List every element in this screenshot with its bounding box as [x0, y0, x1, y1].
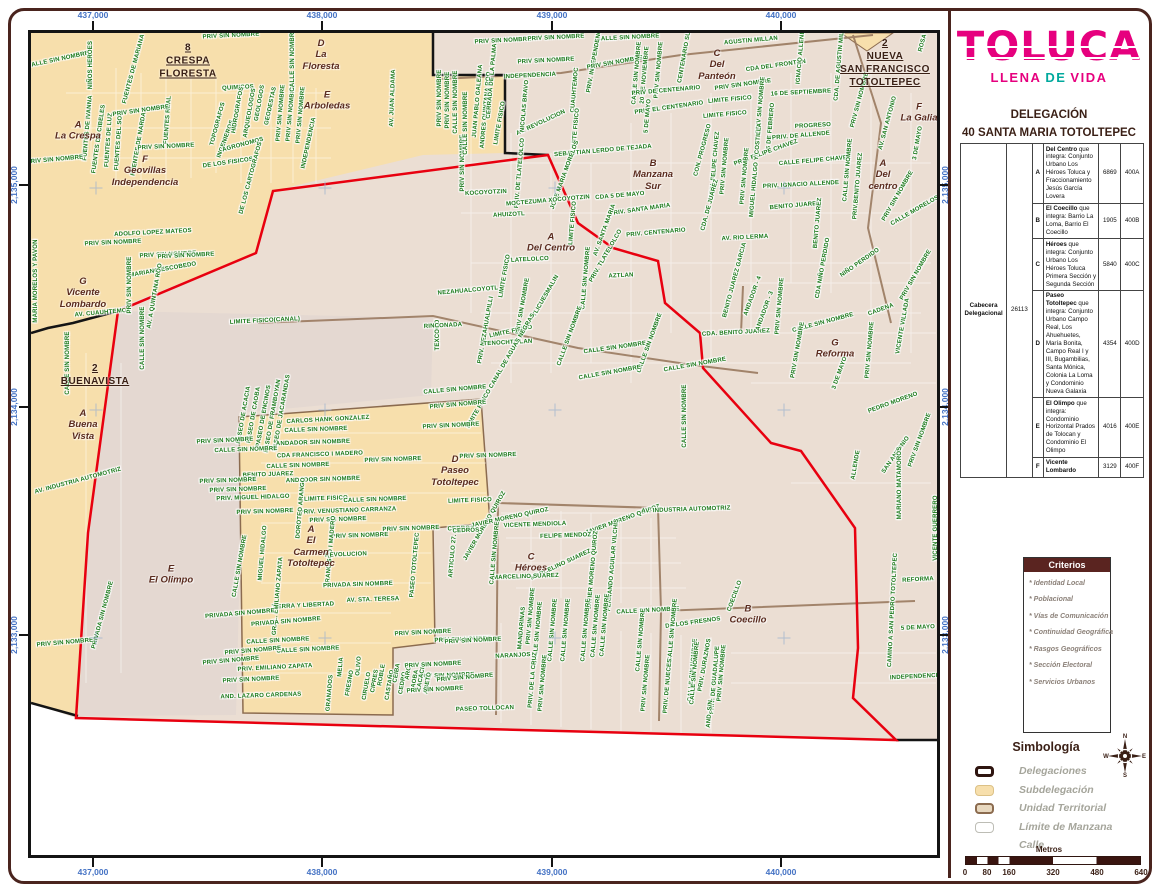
table-cell: 4354 — [1099, 290, 1121, 397]
table-cell: B — [1032, 203, 1043, 239]
table-cell: 4016 — [1099, 398, 1121, 458]
coordinate-tick — [19, 634, 28, 636]
compass-e: E — [1142, 754, 1146, 760]
table-cell: 26113 — [1007, 144, 1032, 478]
coordinate-label: 440,000 — [766, 867, 797, 877]
coordinate-label: 438,000 — [307, 867, 338, 877]
legend-label: Delegaciones — [1019, 765, 1087, 777]
legend-label: Subdelegación — [1019, 784, 1094, 796]
coordinate-tick — [92, 21, 94, 30]
sidebar: TOLUCA LLENADEVIDA DELEGACIÓN 40 SANTA M… — [951, 10, 1147, 878]
coordinate-tick — [780, 21, 782, 30]
table-cell: Del Centro que integra: Conjunto Urbano … — [1043, 144, 1099, 204]
criterios-list: * Identidad Local* Poblacional* Vías de … — [1024, 576, 1110, 691]
legend-label: Unidad Territorial — [1019, 802, 1106, 814]
coordinate-tick — [321, 21, 323, 30]
coordinate-tick — [551, 858, 553, 867]
map-artwork — [31, 33, 940, 858]
legend-label: Límite de Manzana — [1019, 821, 1112, 833]
map-document: CALLE SIN NOMBRENIÑOS HEROESFUENTES DE I… — [0, 0, 1160, 892]
unit-name: El Coecillo — [1046, 205, 1078, 212]
scale-tick-label: 320 — [1046, 868, 1059, 877]
table-cell: C — [1032, 239, 1043, 291]
coordinate-label: 2,135,000 — [9, 166, 19, 204]
unidad-swatch-icon — [975, 803, 994, 814]
table-cell: El Olimpo que integra: Condominio Horizo… — [1043, 398, 1099, 458]
subdelegacion-swatch-icon — [975, 785, 994, 796]
coordinate-label: 438,000 — [307, 10, 338, 20]
coordinate-tick — [780, 858, 782, 867]
tagline-word: VIDA — [1068, 70, 1109, 85]
compass-s: S — [1123, 773, 1127, 778]
unit-name: Vicente Lombardo — [1046, 459, 1076, 474]
table-cell: 400C — [1121, 239, 1144, 291]
unit-name: Paseo Totoltepec — [1046, 292, 1077, 307]
scale-label: Metros — [951, 845, 1147, 854]
table-cell: El Coecillo que integra: Barrio La Loma,… — [1043, 203, 1099, 239]
coordinate-tick — [19, 406, 28, 408]
coordinate-label: 440,000 — [766, 10, 797, 20]
coordinate-tick — [551, 21, 553, 30]
criterios-header: Criterios — [1024, 558, 1110, 572]
title-line2: 40 SANTA MARIA TOTOLTEPEC — [951, 124, 1147, 142]
units-table: Cabecera Delegacional26113ADel Centro qu… — [960, 143, 1144, 478]
coordinate-label: 437,000 — [78, 867, 109, 877]
table-cell: 400E — [1121, 398, 1144, 458]
table-cell: 5840 — [1099, 239, 1121, 291]
coordinate-label: 439,000 — [537, 867, 568, 877]
coordinate-tick — [321, 858, 323, 867]
coordinate-tick — [19, 184, 28, 186]
coordinate-label: 2,133,000 — [9, 616, 19, 654]
tagline-word: LLENA — [989, 70, 1044, 85]
tagline-word: DE — [1043, 70, 1068, 85]
table-cell: F — [1032, 457, 1043, 477]
table-cell: 6869 — [1099, 144, 1121, 204]
unit-name: El Olimpo — [1046, 400, 1075, 407]
compass-w: W — [1103, 754, 1109, 760]
coordinate-label: 439,000 — [537, 10, 568, 20]
scale-tick-label: 0 — [963, 868, 967, 877]
table-cell: D — [1032, 290, 1043, 397]
scale-tick-label: 160 — [1002, 868, 1015, 877]
table-cell: 400B — [1121, 203, 1144, 239]
criterios-item: * Poblacional — [1029, 592, 1110, 608]
table-cell: Cabecera Delegacional — [961, 144, 1007, 478]
scale-tick-label: 640 — [1134, 868, 1147, 877]
table-cell: 400D — [1121, 290, 1144, 397]
coordinate-tick — [92, 858, 94, 867]
scale-tick-label: 80 — [983, 868, 992, 877]
table-cell: A — [1032, 144, 1043, 204]
criterios-item: * Rasgos Geográficos — [1029, 642, 1110, 658]
table-cell: 400F — [1121, 457, 1144, 477]
logo-tagline: LLENADEVIDA — [951, 70, 1147, 85]
criterios-item: * Sección Electoral — [1029, 658, 1110, 674]
table-cell: E — [1032, 398, 1043, 458]
logo-stripe — [959, 57, 1139, 59]
map-canvas: CALLE SIN NOMBRENIÑOS HEROESFUENTES DE I… — [28, 30, 940, 858]
scale-tick-label: 480 — [1090, 868, 1103, 877]
table-cell: Héroes que integra: Conjunto Urbano Los … — [1043, 239, 1099, 291]
scale-bar — [965, 856, 1141, 865]
criterios-box: Criterios * Identidad Local* Poblacional… — [1023, 557, 1111, 733]
unit-name: Héroes — [1046, 241, 1067, 248]
table-row: Cabecera Delegacional26113ADel Centro qu… — [961, 144, 1144, 204]
delegaciones-swatch-icon — [975, 766, 994, 777]
coordinate-label: 2,134,000 — [9, 388, 19, 426]
criterios-item: * Vías de Comunicación — [1029, 609, 1110, 625]
unit-name: Del Centro — [1046, 146, 1077, 153]
criterios-item: * Continuidad Geográfica — [1029, 625, 1110, 641]
limite-swatch-icon — [975, 822, 994, 833]
table-cell: 3129 — [1099, 457, 1121, 477]
legend-title: Simbología — [991, 740, 1101, 754]
title-line1: DELEGACIÓN — [951, 106, 1147, 124]
compass-n: N — [1123, 734, 1127, 740]
coordinate-label: 437,000 — [78, 10, 109, 20]
logo-stripe — [959, 46, 1139, 48]
table-cell: 400A — [1121, 144, 1144, 204]
page-title: DELEGACIÓN 40 SANTA MARIA TOTOLTEPEC — [951, 106, 1147, 143]
table-cell: 1905 — [1099, 203, 1121, 239]
criterios-item: * Servicios Urbanos — [1029, 675, 1110, 691]
table-cell: Vicente Lombardo — [1043, 457, 1099, 477]
table-cell: Paseo Totoltepec que integra: Conjunto U… — [1043, 290, 1099, 397]
criterios-item: * Identidad Local — [1029, 576, 1110, 592]
compass-rose-icon: N E S W — [1103, 732, 1147, 778]
